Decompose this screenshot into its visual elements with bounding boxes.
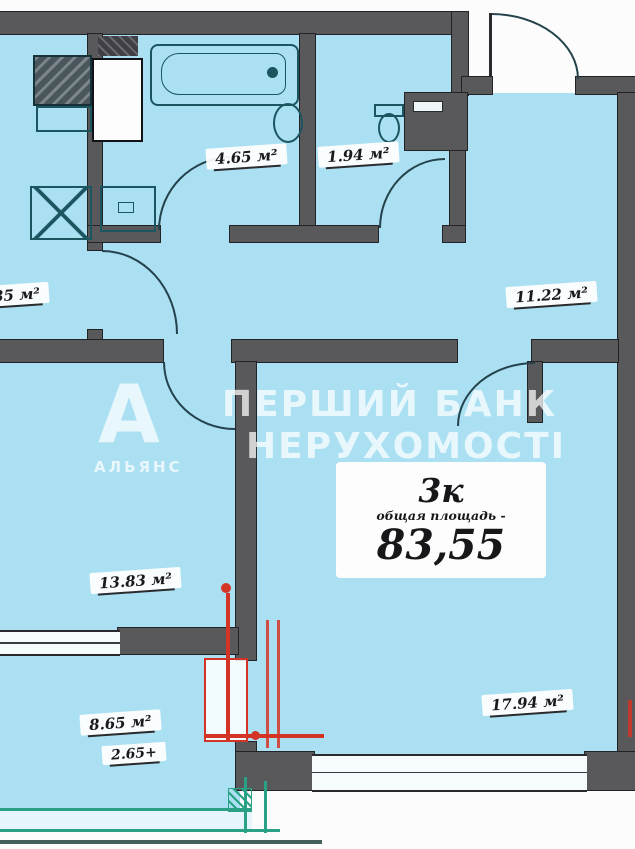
- red-mark-right-wall: [628, 700, 632, 737]
- room-label-left-room: 35 м²: [0, 282, 50, 307]
- window-bedroom-kitchen: [0, 630, 120, 656]
- summary-rooms: 3к: [336, 474, 546, 508]
- kitchen-appliance: [30, 186, 92, 240]
- wall-exterior-top: [0, 12, 462, 34]
- red-pipe-vertical-a: [266, 620, 269, 748]
- vent-shaft-slot: [413, 101, 443, 112]
- summary-card: 3к общая площадь - 83,55: [336, 462, 546, 578]
- watermark-line1: ПЕРШИЙ БАНК: [222, 384, 557, 425]
- vanity-faucet: [118, 202, 134, 213]
- door-arc-entrance: [491, 13, 579, 79]
- bathroom-sink: [273, 103, 303, 143]
- door-leaf-entrance: [489, 13, 492, 77]
- washing-machine: [33, 55, 92, 106]
- boiler-cabinet: [92, 58, 143, 142]
- balcony-line-lower: [0, 829, 280, 832]
- window-sill-line: [312, 772, 587, 774]
- room-label-text: 2.65+: [109, 744, 160, 766]
- room-label-kitchen-extra: 2.65+: [101, 742, 166, 765]
- watermark-logo-caption: АЛЬЯНС: [94, 458, 183, 476]
- floor-plan: А АЛЬЯНС ПЕРШИЙ БАНК НЕРУХОМОСТІ 3к обща…: [0, 0, 635, 849]
- balcony-line-vertical-b: [264, 781, 267, 833]
- wall-hallway-c: [443, 226, 465, 242]
- room-label-bathroom: 4.65 м²: [205, 143, 287, 170]
- toilet-bowl: [378, 113, 400, 143]
- wall-hallway-b: [230, 226, 378, 242]
- bathtub-drain: [267, 67, 278, 78]
- wall-middle-c: [532, 340, 618, 362]
- balcony-floor-strip: [0, 811, 252, 829]
- wall-exterior-right: [618, 93, 635, 790]
- summary-total-area: 83,55: [336, 524, 546, 566]
- watermark-line2: НЕРУХОМОСТІ: [246, 426, 566, 467]
- wall-bottom-left-block: [236, 752, 314, 790]
- window-living-room: [312, 754, 587, 792]
- wall-bottom-right-block: [585, 752, 635, 790]
- watermark-logo-letter: А: [98, 374, 160, 456]
- red-riser-line: [226, 593, 230, 740]
- room-label-kitchen: 8.65 м²: [79, 709, 161, 736]
- balcony-hatch-post: [228, 788, 252, 812]
- red-riser-dot: [221, 583, 231, 593]
- wall-middle-b: [232, 340, 457, 362]
- window-sill-line: [0, 642, 120, 644]
- wall-entry-right: [576, 77, 635, 94]
- balcony-line-upper: [0, 808, 252, 811]
- red-pipe-horizontal: [204, 734, 324, 738]
- boiler-top-block: [98, 36, 138, 56]
- balcony-edge-line: [0, 840, 322, 844]
- wall-bedroom-kitchen: [118, 628, 238, 654]
- kitchen-shelf: [36, 106, 92, 132]
- red-pipe-dot: [251, 731, 260, 740]
- room-label-wc: 1.94 м²: [317, 141, 399, 168]
- wall-entry-left: [462, 77, 492, 94]
- red-pipe-vertical-b: [277, 620, 280, 748]
- room-label-text: 35 м²: [0, 284, 43, 309]
- wall-bathroom-wc: [300, 34, 315, 242]
- wall-middle-a: [0, 340, 163, 362]
